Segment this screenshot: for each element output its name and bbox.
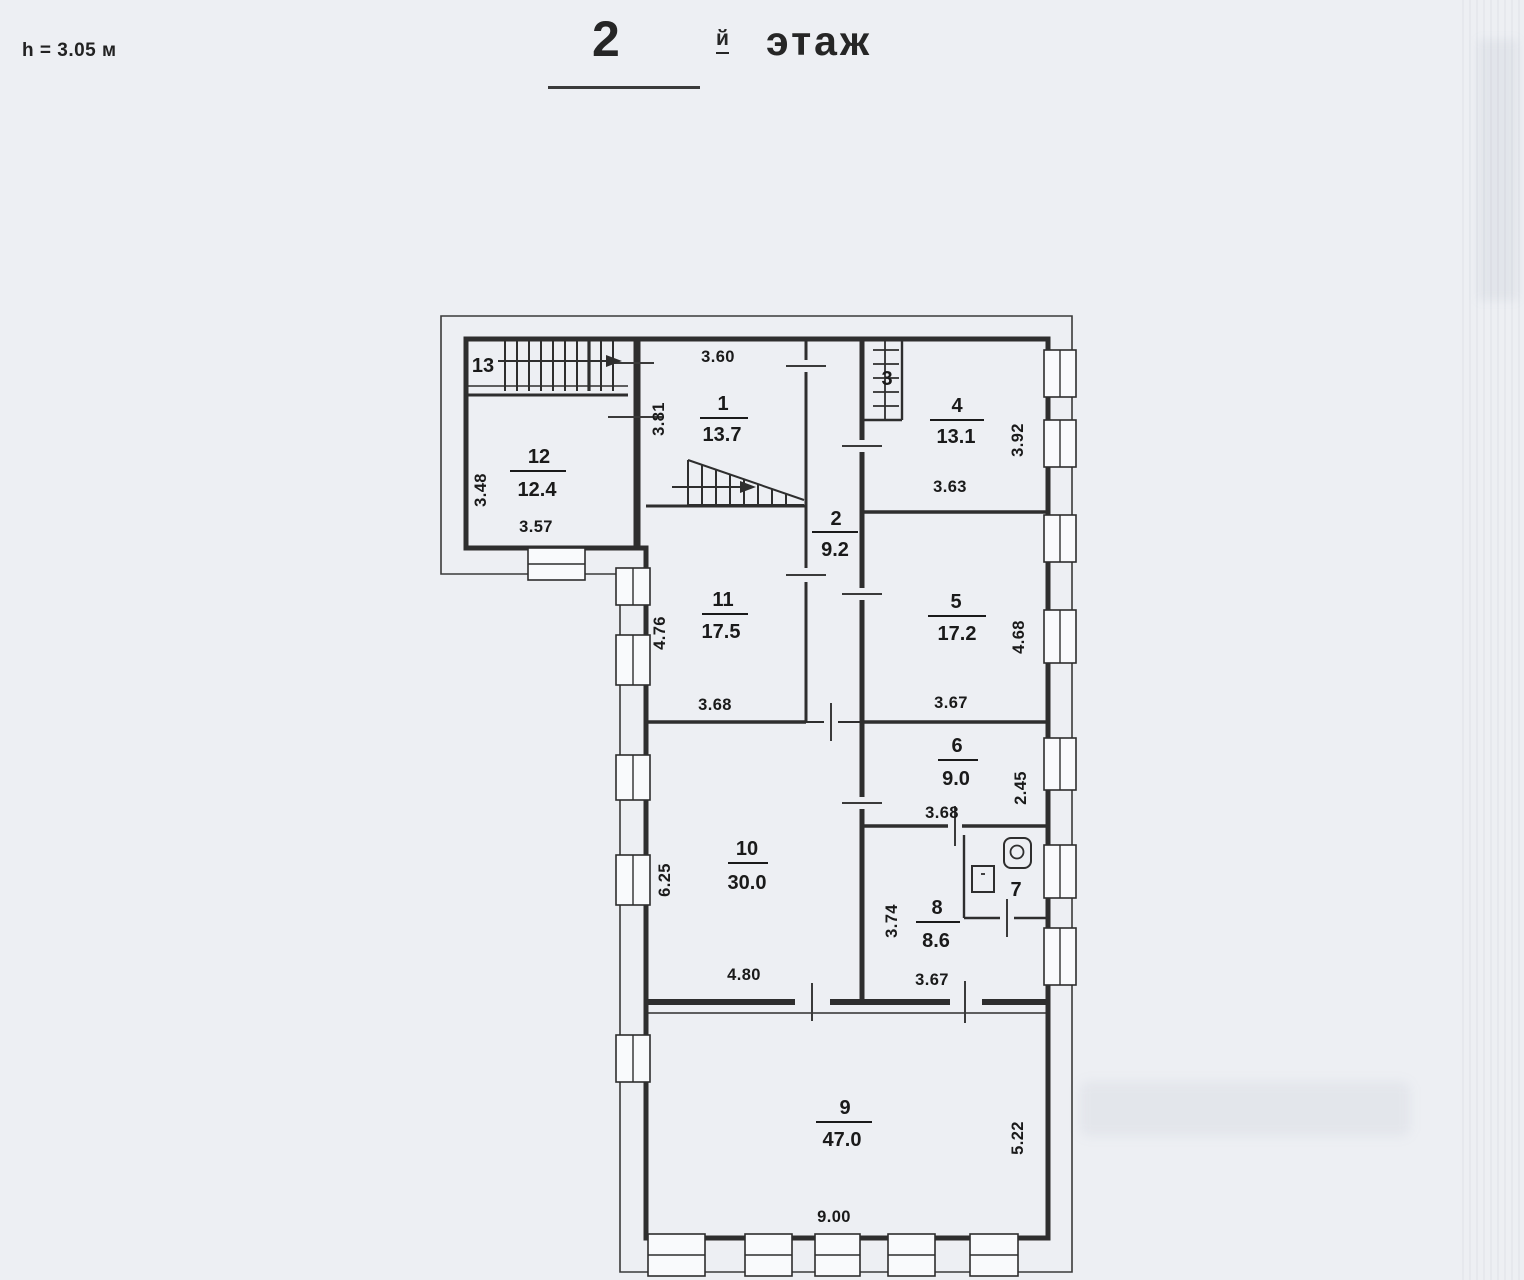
dim-room12-left: 3.48 [472,473,490,507]
window-symbol [1044,610,1076,663]
window-symbol [970,1234,1018,1276]
room-9-area: 47.0 [823,1129,862,1151]
dim-room4-bottom: 3.63 [933,478,967,496]
room-1-number: 1 [717,393,728,415]
scan-smudge-top [1478,40,1518,300]
window-symbol [815,1234,860,1276]
room-4-number: 4 [951,395,963,417]
window-symbol [648,1234,705,1276]
dim-room5-bottom: 3.67 [934,694,968,712]
window-symbol [1044,350,1076,397]
dim-room9-right: 5.22 [1009,1121,1027,1155]
dim-room6-bottom: 3.68 [925,804,959,822]
room-12-area: 12.4 [518,479,558,501]
dim-room4-right: 3.92 [1009,423,1027,457]
toilet-icon [1004,838,1031,868]
room-labels: 13 12 12.4 1 13.7 2 9.2 3 4 13.1 5 17.2 … [472,355,1022,1151]
window-symbol [616,855,650,905]
window-symbol [1044,738,1076,790]
room-12-number: 12 [528,446,550,468]
room-9-number: 9 [839,1097,850,1119]
room-10-area: 30.0 [728,872,767,894]
dim-room5-right: 4.68 [1010,620,1028,654]
room-7-number: 7 [1010,879,1021,901]
dim-room8-left: 3.74 [883,904,901,938]
room-13-number: 13 [472,355,494,377]
room-8-area: 8.6 [922,930,950,952]
dim-room8-bottom: 3.67 [915,971,949,989]
scan-smudge [1080,1082,1410,1136]
winder-stair-icon [672,460,804,505]
dim-room6-right: 2.45 [1012,771,1030,805]
windows [528,350,1076,1276]
window-symbol [1044,845,1076,898]
window-symbol [616,1035,650,1082]
bathroom-fixtures [972,838,1031,892]
room-8-number: 8 [931,897,942,919]
room-5-area: 17.2 [938,623,977,645]
room-3-number: 3 [881,368,892,390]
window-symbol [616,635,650,685]
dim-room12-bottom: 3.57 [519,518,553,536]
window-symbol [528,548,585,580]
room-1-area: 13.7 [703,424,742,446]
room-2-number: 2 [830,508,841,530]
window-symbol [888,1234,935,1276]
room-6-area: 9.0 [942,768,970,790]
window-symbol [616,568,650,605]
dim-room1-left: 3.81 [650,402,668,436]
room-5-number: 5 [950,591,961,613]
room-4-area: 13.1 [937,426,976,448]
dim-room10-left: 6.25 [656,863,674,897]
window-symbol [616,755,650,800]
dim-room1-top: 3.60 [701,348,735,366]
window-symbol [745,1234,792,1276]
room-11-number: 11 [712,589,733,611]
room-2-area: 9.2 [821,539,849,561]
dim-room11-left: 4.76 [651,616,669,650]
sink-icon [972,866,994,892]
room-6-number: 6 [951,735,962,757]
dim-room11-bottom: 3.68 [698,696,732,714]
window-symbol [1044,515,1076,562]
room-10-number: 10 [736,838,758,860]
dim-room10-bottom: 4.80 [727,966,761,984]
staircase-icon [498,340,622,391]
room-11-area: 17.5 [702,621,741,643]
window-symbol [1044,928,1076,985]
scanned-floor-plan-page: h = 3.05 м 2 й этаж [0,0,1524,1280]
dim-room9-bottom: 9.00 [817,1208,851,1226]
window-symbol [1044,420,1076,467]
